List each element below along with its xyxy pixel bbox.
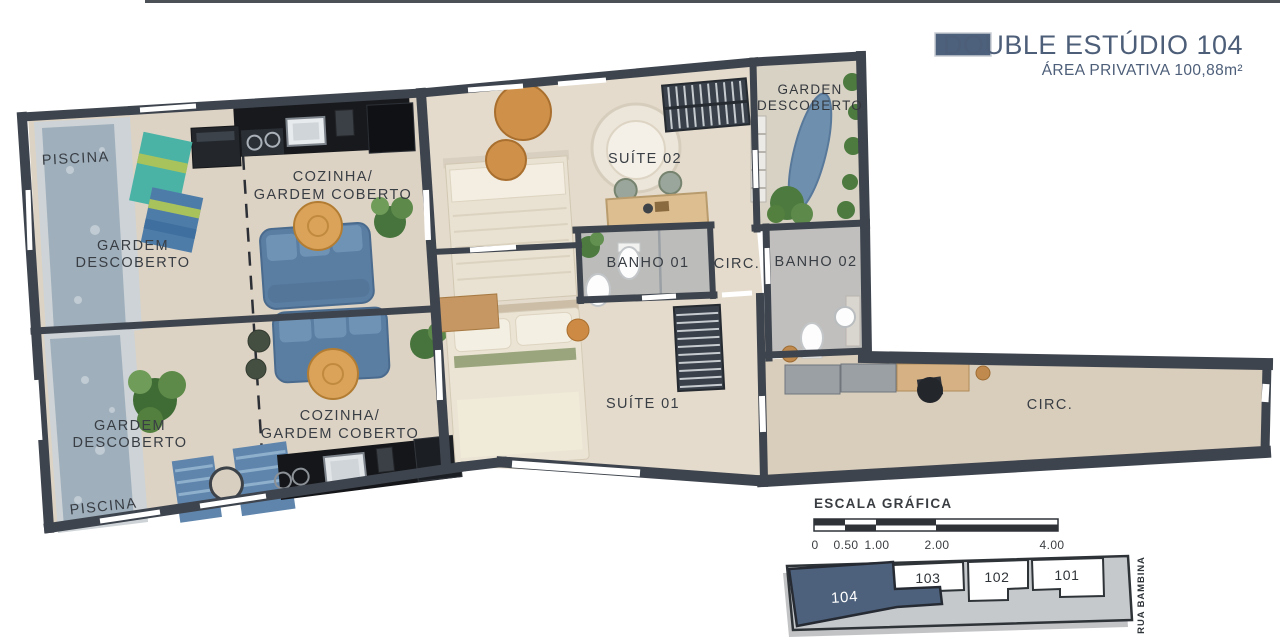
scale-title: ESCALA GRÁFICA: [814, 496, 952, 511]
label-circ-right: CIRC.: [1027, 397, 1073, 413]
label-gardem-bottom-1: GARDEM: [94, 418, 166, 434]
label-gardem-top-2: DESCOBERTO: [76, 255, 191, 271]
floorplan-canvas: PISCINA GARDEM DESCOBERTO COZINHA/ GARDE…: [0, 0, 1280, 644]
label-cozinha-bottom-2: GARDEM COBERTO: [261, 426, 419, 442]
page-subtitle: ÁREA PRIVATIVA 100,88m²: [1042, 62, 1243, 79]
graphic-scale: ESCALA GRÁFICA 0 0.50 1.00 2.00 4.00: [811, 496, 1064, 552]
label-garden-right-2: DESCOBERTO: [757, 98, 863, 113]
floorplan-page: PISCINA GARDEM DESCOBERTO COZINHA/ GARDE…: [0, 0, 1280, 644]
label-cozinha-top-2: GARDEM COBERTO: [254, 187, 412, 203]
stool: [567, 319, 589, 341]
label-gardem-bottom-2: DESCOBERTO: [73, 435, 188, 451]
label-cozinha-bottom-1: COZINHA/: [300, 408, 380, 424]
label-suite01: SUÍTE 01: [606, 395, 680, 412]
scale-tick-1: 0.50: [834, 538, 859, 552]
side-table: [486, 140, 526, 180]
stairs-suite02: [662, 78, 750, 131]
label-banho01: BANHO 01: [607, 255, 690, 271]
page-title: DOUBLE ESTÚDIO 104: [943, 29, 1243, 60]
grill: [191, 126, 241, 168]
keyplan-unit-102-label: 102: [984, 569, 1009, 585]
pouf: [246, 359, 266, 379]
stool: [976, 366, 990, 380]
side-table: [495, 84, 551, 140]
scale-tick-0: 0: [811, 538, 818, 552]
street-label: RUA BAMBINA: [1136, 556, 1147, 634]
top-border-line: [145, 0, 1280, 3]
stairs-suite01: [674, 305, 724, 391]
scale-ticks: 0 0.50 1.00 2.00 4.00: [811, 538, 1064, 552]
keyplan: 104 103 102 101 RUA BAMBINA: [783, 556, 1147, 637]
scale-tick-3: 2.00: [925, 538, 950, 552]
pouf: [248, 330, 270, 352]
scale-tick-2: 1.00: [865, 538, 890, 552]
keyplan-unit-103-label: 103: [915, 570, 940, 586]
office-chair: [917, 377, 943, 403]
label-garden-right-1: GARDEN: [778, 82, 843, 97]
label-circ-center: CIRC.: [714, 256, 760, 272]
label-suite02: SUÍTE 02: [608, 150, 682, 167]
scale-tick-4: 4.00: [1040, 538, 1065, 552]
round-table-upper: [294, 202, 342, 250]
header: DOUBLE ESTÚDIO 104 ÁREA PRIVATIVA 100,88…: [935, 29, 1243, 79]
keyplan-unit-101-label: 101: [1054, 567, 1079, 583]
round-table-lower: [308, 349, 358, 399]
label-gardem-top-1: GARDEM: [97, 238, 169, 254]
wood-cabinet: [437, 294, 499, 332]
label-banho02: BANHO 02: [775, 254, 858, 270]
label-cozinha-top-1: COZINHA/: [293, 169, 373, 185]
fridge: [367, 103, 415, 153]
keyplan-unit-104-label: 104: [830, 588, 859, 607]
scale-bar: [814, 519, 1058, 531]
